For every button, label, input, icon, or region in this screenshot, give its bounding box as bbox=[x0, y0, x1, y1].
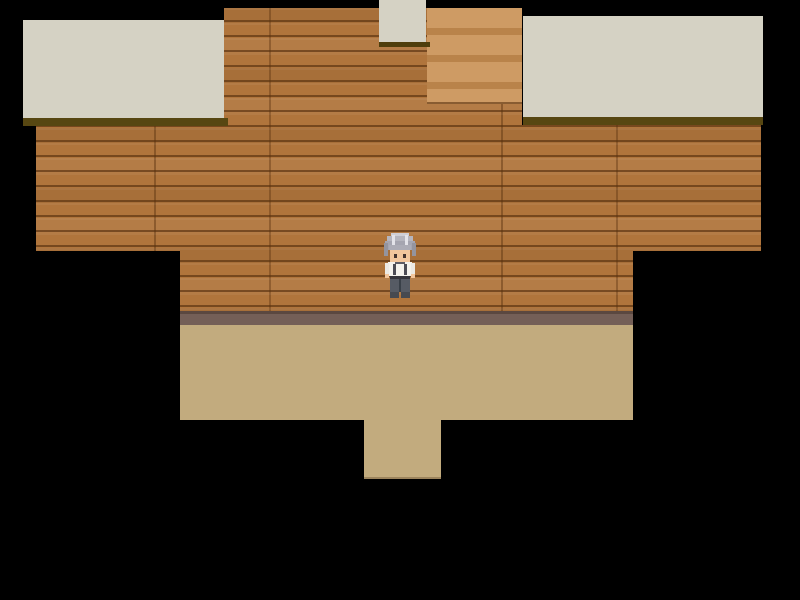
game-viewport bbox=[0, 0, 800, 600]
doorway-tile-shadow bbox=[379, 42, 430, 47]
ceiling-panel-right bbox=[523, 16, 763, 117]
wall-baseboard bbox=[180, 311, 633, 325]
room-floor[interactable] bbox=[180, 325, 633, 420]
doorway-ceiling-tile bbox=[379, 0, 426, 42]
old-man-sprite-graphic bbox=[383, 233, 417, 298]
staircase-tiles[interactable] bbox=[427, 8, 522, 104]
void-bottom-left bbox=[36, 251, 180, 311]
void-bottom-right bbox=[633, 251, 761, 311]
doorway-floor-step[interactable] bbox=[364, 420, 441, 479]
ceiling-shadow-right bbox=[523, 117, 763, 125]
character-sprite[interactable] bbox=[383, 233, 417, 298]
ceiling-shadow-left bbox=[23, 118, 228, 126]
ceiling-panel-left bbox=[23, 20, 224, 118]
